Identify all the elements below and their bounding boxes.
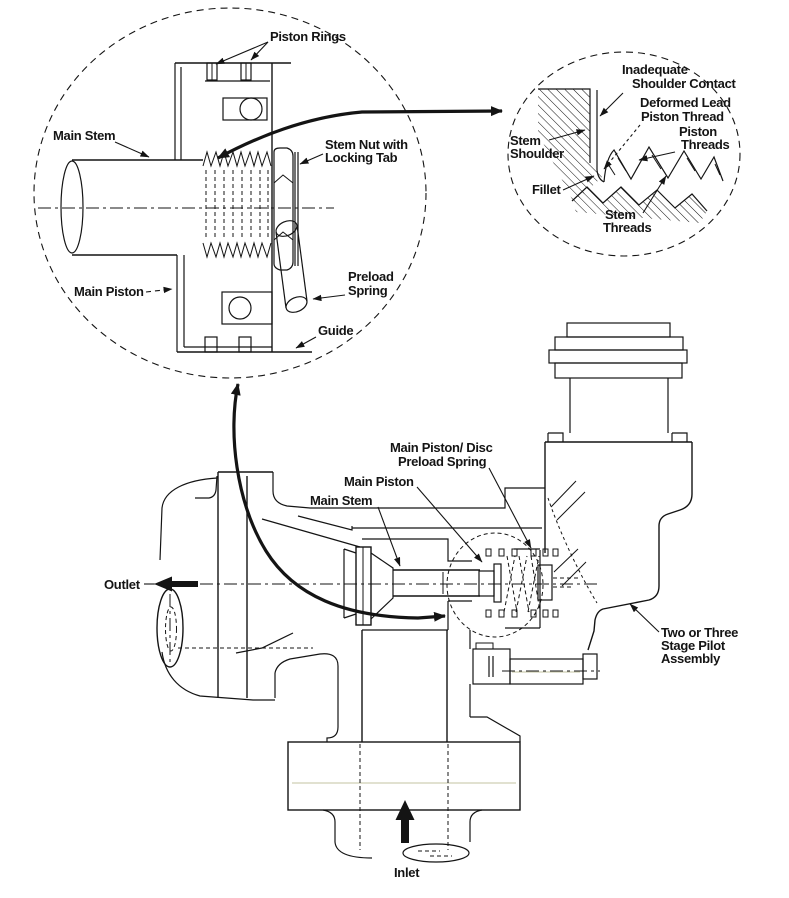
label-deformed-1: Deformed Lead (640, 95, 731, 110)
main-piston-detail-drawing (175, 63, 312, 352)
label-piston-threads-2: Threads (681, 137, 730, 152)
main-piston-chamber (344, 533, 558, 637)
label-stem-shoulder-2: Shoulder (510, 146, 564, 161)
stem-end-hatched (61, 161, 83, 253)
detail-circle-thread-failure: Inadequate Shoulder Contact Deformed Lea… (508, 52, 740, 256)
label-mp-disc-1: Main Piston/ Disc (390, 440, 493, 455)
label-piston-rings: Piston Rings (270, 29, 346, 44)
pilot-assembly (470, 323, 692, 684)
stem-threads-detail-drawing (203, 152, 271, 257)
section-hatches (551, 481, 586, 586)
label-pilot-3: Assembly (661, 651, 721, 666)
pilot-supply-fitting (470, 630, 600, 684)
inlet-flow-arrow-icon (396, 800, 415, 843)
valve-failure-diagram: Piston Rings Main Stem Stem Nut with Loc… (0, 0, 789, 898)
diagram-canvas: Piston Rings Main Stem Stem Nut with Loc… (0, 0, 789, 898)
label-main-stem: Main Stem (53, 128, 115, 143)
label-main-piston: Main Piston (74, 284, 144, 299)
label-stem-threads-2: Threads (603, 220, 652, 235)
label-guide: Guide (318, 323, 353, 338)
piston-plate (494, 564, 501, 602)
label-inadequate-2: Shoulder Contact (632, 76, 737, 91)
inlet-flange (288, 742, 520, 810)
detail-circle-piston-assembly: Piston Rings Main Stem Stem Nut with Loc… (34, 8, 426, 378)
valve-assembly-drawing: Main Piston/ Disc Preload Spring Main Pi… (104, 323, 738, 880)
stem-nut-detail-drawing (274, 148, 298, 270)
label-preload-2: Spring (348, 283, 388, 298)
label-fillet: Fillet (532, 182, 562, 197)
label-preload-1: Preload (348, 269, 394, 284)
main-stem-detail-drawing (61, 160, 203, 255)
label-main-stem: Main Stem (310, 493, 372, 508)
lower-body-inlet (178, 630, 520, 862)
label-inlet: Inlet (394, 865, 420, 880)
label-outlet: Outlet (104, 577, 141, 592)
label-stem-nut-2: Locking Tab (325, 150, 398, 165)
label-mp-disc-2: Preload Spring (398, 454, 487, 469)
label-deformed-2: Piston Thread (641, 109, 724, 124)
label-inadequate-1: Inadequate (622, 62, 688, 77)
label-main-piston: Main Piston (344, 474, 414, 489)
inlet-opening (403, 844, 469, 862)
